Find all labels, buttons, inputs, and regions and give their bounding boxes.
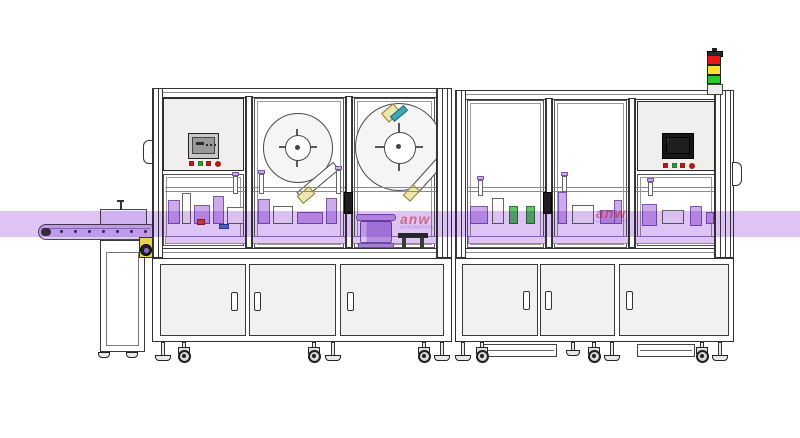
leveling-foot (604, 355, 620, 361)
left-hmi-display (192, 137, 215, 154)
caster-wheel (308, 350, 321, 363)
hmi-glyph-icon (196, 142, 204, 145)
hmi-button-red-circle[interactable] (215, 161, 221, 167)
drive-sprocket-icon (140, 244, 152, 256)
foot-stem (440, 342, 444, 356)
foot-stem (718, 342, 722, 356)
signal-tower (707, 48, 721, 94)
door-handle[interactable] (254, 292, 261, 311)
right-hmi-display (666, 137, 690, 154)
caster-wheel (588, 350, 601, 363)
hmi-glyph-icon (210, 144, 212, 146)
left-hmi-screen[interactable] (188, 133, 219, 159)
tower-light-yellow (707, 65, 721, 75)
hmi-button-red-circle[interactable] (689, 163, 695, 169)
tower-light-green (707, 75, 721, 84)
cabinet-door[interactable] (340, 264, 444, 336)
machine-illustration: anw AUTOMATION anw AUTOMATION (0, 0, 800, 438)
foot-stem (331, 342, 335, 356)
leveling-foot (325, 355, 341, 361)
stand-foot (98, 352, 110, 358)
hmi-button-red[interactable] (206, 161, 211, 166)
foot-stem (461, 342, 465, 356)
hmi-button-red[interactable] (680, 163, 685, 168)
leveling-foot (455, 355, 471, 361)
door-handle[interactable] (545, 291, 552, 310)
hmi-button-green[interactable] (198, 161, 203, 166)
hmi-glyph-icon (214, 144, 216, 146)
tower-light-red (707, 55, 721, 65)
cabinet-door[interactable] (619, 264, 729, 336)
leveling-foot (566, 350, 580, 356)
hmi-button-red[interactable] (663, 163, 668, 168)
conveyor-stand-panel (106, 252, 139, 346)
door-handle[interactable] (231, 292, 238, 311)
left-hmi-buttons[interactable] (189, 161, 223, 169)
foot-stem (610, 342, 614, 356)
caster-wheel (476, 350, 489, 363)
right-hmi-buttons[interactable] (663, 163, 697, 171)
left-machine-side-handle[interactable] (143, 140, 153, 164)
right-machine-bench-beam (455, 248, 734, 259)
leveling-foot (712, 355, 728, 361)
base-subframe (637, 344, 695, 357)
left-machine-bench-beam (152, 248, 452, 259)
leveling-foot (434, 355, 450, 361)
highlight-band-overlay (0, 211, 800, 237)
door-handle[interactable] (523, 291, 530, 310)
sensor-antenna (120, 202, 122, 210)
caster-wheel (696, 350, 709, 363)
hmi-button-red[interactable] (189, 161, 194, 166)
leveling-foot (155, 355, 171, 361)
right-hmi-screen[interactable] (662, 133, 694, 159)
left-machine-top-beam (152, 88, 452, 98)
stand-foot (126, 352, 138, 358)
caster-wheel (418, 350, 431, 363)
caster-wheel (178, 350, 191, 363)
sensor-antenna-tip (117, 200, 124, 202)
right-machine-top-beam (455, 90, 734, 100)
tower-base (707, 84, 723, 95)
door-handle[interactable] (347, 292, 354, 311)
cabinet-door[interactable] (249, 264, 336, 336)
foot-stem (161, 342, 165, 356)
base-subframe (483, 344, 557, 357)
door-handle[interactable] (626, 291, 633, 310)
hmi-glyph-icon (206, 144, 208, 146)
hmi-button-green[interactable] (672, 163, 677, 168)
right-machine-side-handle[interactable] (732, 162, 742, 186)
